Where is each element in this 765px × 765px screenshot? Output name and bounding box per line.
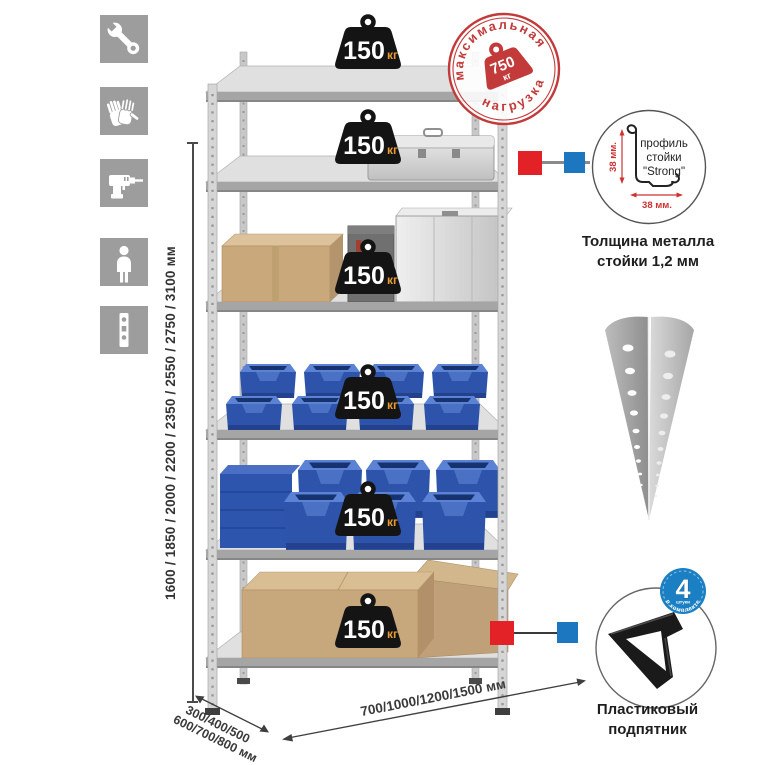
- svg-text:кг: кг: [387, 143, 398, 157]
- shelving-infographic: 1600 / 1850 / 2000 / 2200 / 2350 / 2550 …: [0, 0, 765, 765]
- foot-detail-circle: 4 штуки в комплекте: [592, 560, 728, 712]
- svg-text:38 мм.: 38 мм.: [608, 142, 619, 172]
- width-dimension: 700/1000/1200/1500 мм: [272, 664, 594, 748]
- shelf-load-badge-2: 150 кг: [320, 109, 416, 169]
- weight-handle-icon: [363, 367, 374, 378]
- callout-marker-red-1: [518, 151, 542, 175]
- upright-profile-image: [597, 308, 702, 533]
- shelf-load-badge-4: 150 кг: [320, 364, 416, 424]
- svg-text:кг: кг: [387, 273, 398, 287]
- svg-text:кг: кг: [387, 48, 398, 62]
- height-dimension-line: [192, 143, 194, 703]
- shelf-load-badge-6: 150 кг: [320, 593, 416, 653]
- shelf-load-badge-3: 150 кг: [320, 239, 416, 299]
- svg-text:150: 150: [343, 504, 385, 532]
- callout-marker-red-2: [490, 621, 514, 645]
- svg-text:штуки: штуки: [676, 600, 690, 605]
- gloves-icon: [100, 87, 148, 135]
- svg-text:кг: кг: [387, 398, 398, 412]
- svg-text:150: 150: [343, 616, 385, 644]
- weight-handle-icon: [363, 484, 374, 495]
- svg-text:профиль: профиль: [640, 138, 688, 150]
- profile-detail-circle: 38 мм. 38 мм. профиль стойки "Strong": [588, 106, 710, 228]
- height-dimension-label: 1600 / 1850 / 2000 / 2200 / 2350 / 2550 …: [163, 143, 187, 703]
- svg-text:700/1000/1200/1500 мм: 700/1000/1200/1500 мм: [359, 676, 507, 719]
- svg-text:кг: кг: [387, 515, 398, 529]
- callout-line-2: [514, 632, 560, 634]
- wrench-icon: [100, 15, 148, 63]
- shelf-load-badge-1: 150 кг: [320, 14, 416, 74]
- profile-caption-line2: стойки 1,2 мм: [573, 252, 723, 272]
- person-icon: [100, 238, 148, 286]
- svg-text:38 мм.: 38 мм.: [642, 200, 672, 211]
- weight-handle-icon: [363, 242, 374, 253]
- drill-icon: [100, 159, 148, 207]
- svg-text:150: 150: [343, 132, 385, 160]
- weight-handle-icon: [363, 596, 374, 607]
- included-count-badge: 4 штуки в комплекте: [660, 568, 706, 614]
- svg-text:стойки: стойки: [646, 152, 681, 164]
- profile-caption-line1: Толщина металла: [573, 232, 723, 252]
- max-load-stamp: максимальная нагрузка 750 кг: [438, 5, 570, 131]
- shelf-load-badge-5: 150 кг: [320, 481, 416, 541]
- svg-text:кг: кг: [387, 627, 398, 641]
- svg-text:150: 150: [343, 37, 385, 65]
- svg-text:150: 150: [343, 262, 385, 290]
- weight-handle-icon: [363, 17, 374, 28]
- callout-marker-blue-2: [557, 622, 578, 643]
- post-icon: [100, 306, 148, 354]
- profile-caption: Толщина металла стойки 1,2 мм: [573, 232, 723, 271]
- callout-marker-blue-1: [564, 152, 585, 173]
- svg-text:"Strong": "Strong": [643, 166, 685, 178]
- weight-handle-icon: [363, 112, 374, 123]
- svg-text:150: 150: [343, 387, 385, 415]
